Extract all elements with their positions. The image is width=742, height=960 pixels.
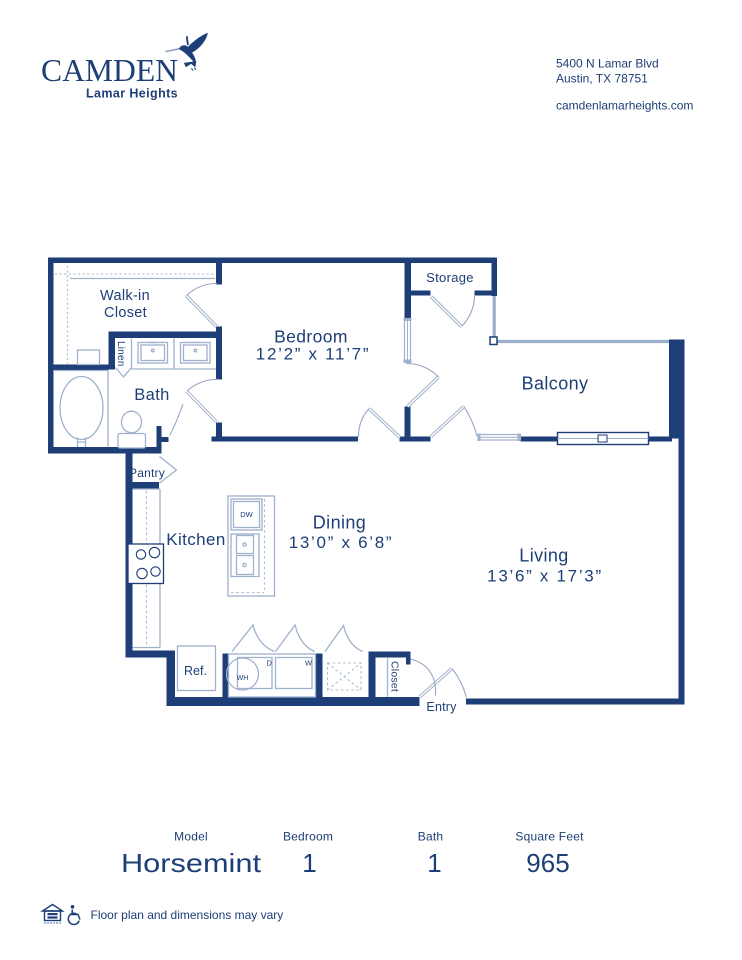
svg-text:Kitchen: Kitchen — [166, 530, 226, 549]
svg-text:965: 965 — [526, 848, 569, 878]
svg-text:1: 1 — [302, 848, 316, 878]
svg-text:D: D — [267, 659, 273, 668]
svg-text:Bedroom: Bedroom — [283, 830, 333, 844]
svg-text:Model: Model — [174, 830, 208, 844]
svg-text:DW: DW — [240, 510, 253, 519]
svg-text:1: 1 — [427, 848, 441, 878]
svg-text:Closet: Closet — [104, 305, 147, 321]
svg-text:Closet: Closet — [389, 661, 401, 692]
svg-text:13’0” x 6’8”: 13’0” x 6’8” — [289, 533, 394, 552]
svg-text:Dining: Dining — [313, 513, 366, 533]
svg-text:Floor plan and dimensions may: Floor plan and dimensions may vary — [91, 908, 284, 922]
svg-text:Bedroom: Bedroom — [274, 327, 348, 347]
svg-text:Pantry: Pantry — [129, 466, 165, 480]
svg-text:Balcony: Balcony — [522, 374, 589, 394]
svg-text:13’6” x 17’3”: 13’6” x 17’3” — [487, 567, 603, 586]
svg-text:CAMDEN: CAMDEN — [41, 52, 178, 88]
svg-text:Lamar Heights: Lamar Heights — [86, 87, 178, 101]
svg-text:WH: WH — [237, 675, 249, 682]
svg-text:W: W — [305, 659, 313, 668]
svg-text:Entry: Entry — [426, 700, 457, 714]
svg-text:Walk-in: Walk-in — [100, 288, 150, 304]
svg-text:Horsemint: Horsemint — [121, 848, 262, 878]
svg-text:Bath: Bath — [134, 386, 170, 404]
svg-text:12’2” x 11’7”: 12’2” x 11’7” — [256, 345, 370, 364]
svg-text:Austin, TX 78751: Austin, TX 78751 — [556, 72, 648, 86]
svg-text:camdenlamarheights.com: camdenlamarheights.com — [556, 99, 693, 113]
svg-text:Ref.: Ref. — [184, 664, 207, 678]
svg-text:5400 N Lamar Blvd: 5400 N Lamar Blvd — [556, 57, 659, 71]
svg-text:Bath: Bath — [418, 830, 444, 844]
svg-text:Living: Living — [519, 546, 568, 566]
svg-text:Square Feet: Square Feet — [515, 830, 584, 844]
svg-text:Storage: Storage — [426, 270, 474, 285]
svg-text:Linen: Linen — [115, 341, 126, 366]
